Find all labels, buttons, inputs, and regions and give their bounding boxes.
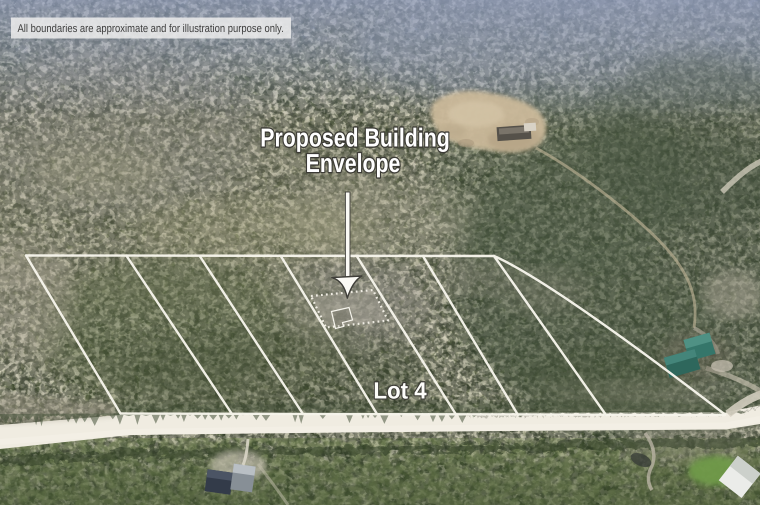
svg-text:Envelope: Envelope [306, 148, 401, 178]
svg-text:All boundaries are approximate: All boundaries are approximate and for i… [18, 23, 284, 35]
svg-text:Lot 4: Lot 4 [373, 378, 426, 404]
